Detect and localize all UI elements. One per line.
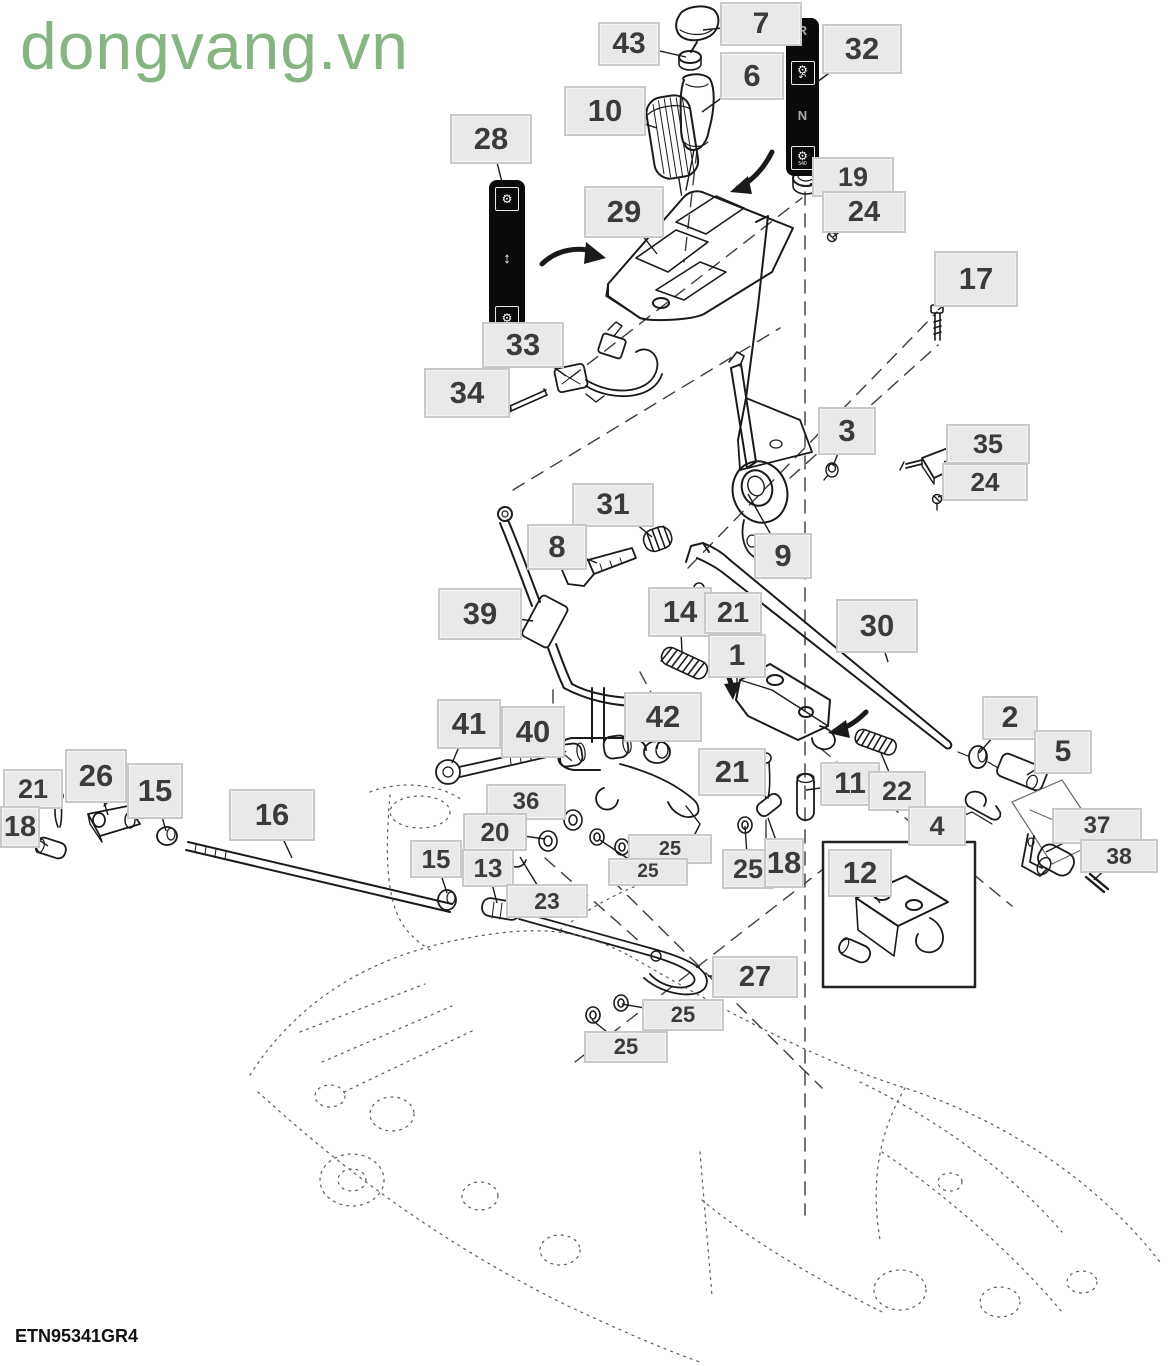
leader-line-18 [768,818,784,863]
leader-line-25 [592,1020,626,1047]
leader-line-24 [938,482,985,497]
leader-lines [0,0,1170,1366]
leader-line-25 [745,826,748,869]
leader-line-39 [480,614,533,621]
leader-line-12 [860,873,880,903]
leader-line-5 [1027,752,1063,775]
leader-line-25 [622,1004,683,1015]
leader-line-7 [703,24,761,30]
leader-line-21 [701,601,733,613]
leader-line-13 [488,868,497,903]
leader-line-21 [33,789,59,801]
leader-line-8 [557,547,597,563]
leader-line-26 [96,776,108,815]
leader-line-15 [155,791,166,831]
leader-line-3 [833,431,847,466]
leader-line-43 [629,44,686,57]
leader-line-2 [979,718,1010,753]
leader-line-27 [708,976,755,977]
leader-line-33 [523,345,566,376]
leader-line-31 [613,505,652,537]
leader-line-17 [938,279,976,310]
parts-diagram-page: dongvang.vn ETN95341GR4 R ⚙↶ N ⚙ 540 ⚙ ↕… [0,0,1170,1366]
leader-line-20 [495,832,545,839]
leader-line-41 [452,724,469,763]
leader-line-34 [467,393,503,406]
leader-line-16 [272,815,292,858]
leader-line-18 [20,827,48,846]
leader-line-40 [533,732,566,752]
leader-line-14 [680,612,682,652]
leader-line-23 [520,857,547,901]
leader-line-19 [810,177,853,184]
leader-line-10 [605,111,657,128]
leader-line-42 [657,717,663,749]
leader-line-9 [748,494,783,556]
leader-line-30 [877,626,888,662]
leader-line-25 [640,846,670,849]
leader-line-25 [600,840,648,872]
leader-line-6 [702,76,752,112]
leader-line-22 [881,753,897,791]
leader-line-32 [817,49,862,82]
leader-line-37 [1046,826,1097,852]
leader-line-29 [624,212,657,254]
leader-line-28 [491,139,503,186]
leader-line-35 [944,444,988,462]
leader-line-4 [937,812,972,826]
leader-line-38 [1094,856,1119,880]
leader-line-36 [526,802,566,816]
leader-line-11 [806,784,850,790]
leader-line-24 [833,212,864,237]
leader-line-15 [436,859,447,893]
